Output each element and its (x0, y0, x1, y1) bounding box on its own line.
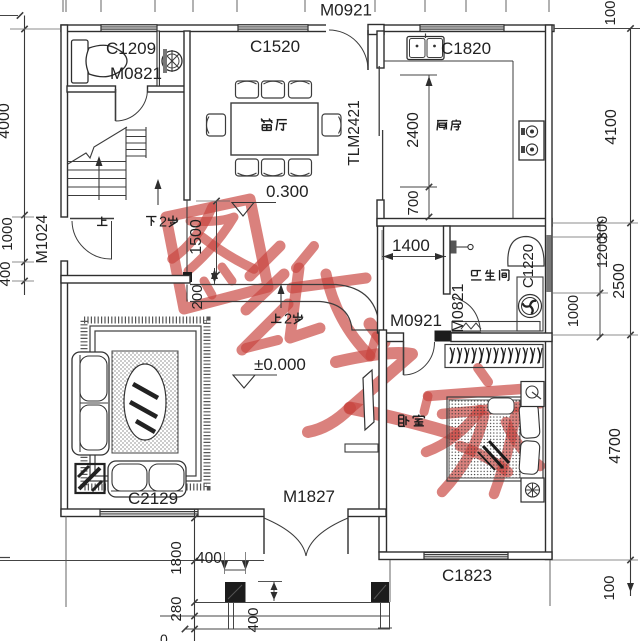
svg-text:280: 280 (168, 596, 185, 621)
svg-text:400: 400 (0, 261, 14, 286)
svg-text:0.300: 0.300 (266, 182, 309, 201)
svg-text:100: 100 (601, 575, 618, 600)
svg-text:1000: 1000 (566, 295, 582, 327)
svg-text:200: 200 (189, 284, 206, 309)
svg-text:2400: 2400 (405, 112, 422, 148)
svg-text:C1209: C1209 (106, 39, 156, 58)
svg-text:M0921: M0921 (390, 311, 442, 330)
svg-text:1200: 1200 (595, 236, 611, 268)
svg-text:0: 0 (160, 631, 168, 641)
svg-text:C1220: C1220 (520, 244, 537, 288)
svg-text:TLM2421: TLM2421 (346, 100, 363, 165)
svg-text:4100: 4100 (603, 109, 620, 145)
svg-text:M1024: M1024 (34, 214, 51, 263)
svg-text:400: 400 (196, 550, 222, 567)
svg-text:100: 100 (602, 0, 619, 25)
svg-text:1500: 1500 (188, 219, 205, 255)
svg-text:700: 700 (405, 190, 422, 215)
svg-text:M0821: M0821 (110, 64, 162, 83)
svg-text:C2129: C2129 (128, 489, 178, 508)
svg-text:M0821: M0821 (450, 283, 467, 332)
svg-text:C1823: C1823 (442, 566, 492, 585)
svg-text:2: 2 (159, 215, 167, 231)
svg-text:4700: 4700 (607, 428, 624, 464)
svg-text:1800: 1800 (168, 541, 185, 574)
svg-text:C1820: C1820 (441, 39, 491, 58)
svg-text:2: 2 (284, 312, 292, 328)
svg-text:1400: 1400 (392, 236, 430, 255)
svg-text:±0.000: ±0.000 (254, 355, 306, 374)
svg-text:C1520: C1520 (250, 37, 300, 56)
svg-text:4000: 4000 (0, 103, 13, 139)
svg-text:1000: 1000 (0, 217, 16, 250)
svg-text:M1827: M1827 (283, 487, 335, 506)
svg-text:M0921: M0921 (320, 1, 372, 20)
svg-text:2500: 2500 (611, 263, 628, 299)
svg-text:400: 400 (245, 607, 262, 632)
